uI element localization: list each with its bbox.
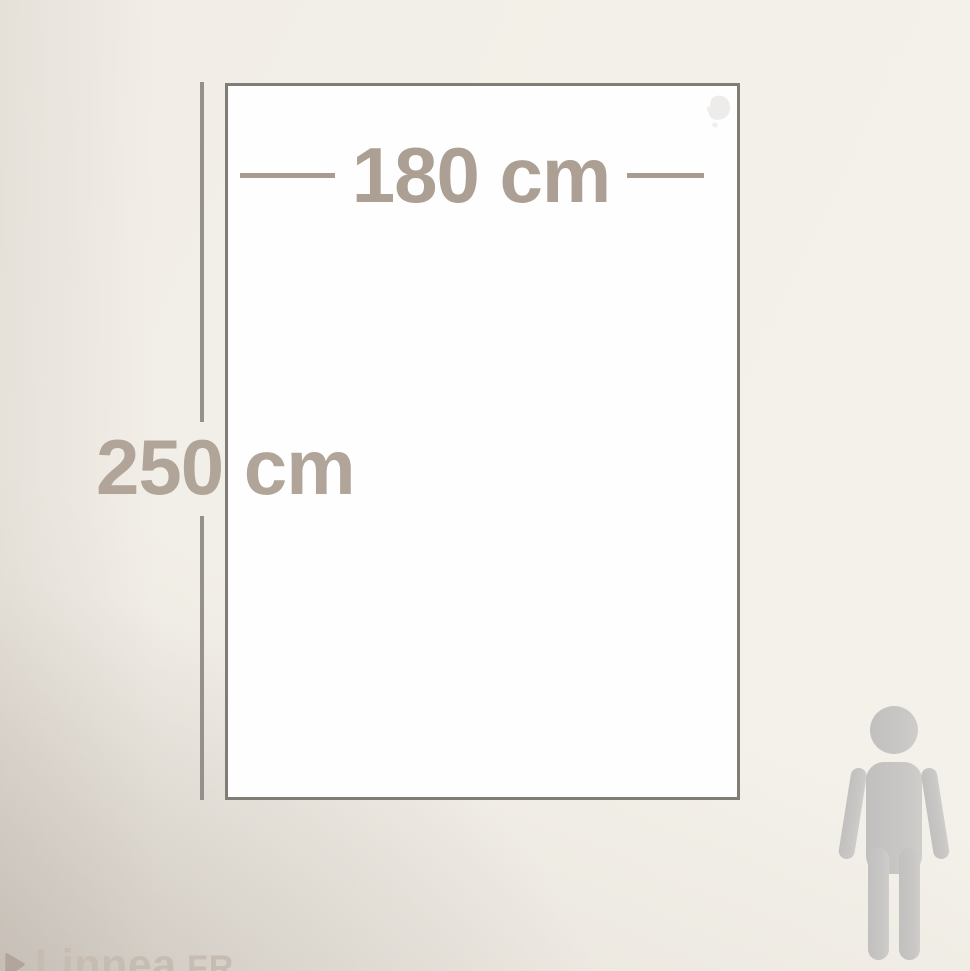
brand-name: Linnea bbox=[35, 941, 177, 971]
width-dimension: 180 cm bbox=[240, 135, 704, 215]
person-icon bbox=[829, 698, 959, 968]
brand-arrow-icon bbox=[4, 952, 26, 971]
brand-text: Linnea.FR bbox=[35, 944, 234, 971]
width-dimension-label: 180 cm bbox=[352, 136, 611, 214]
height-dimension-label: 250 cm bbox=[96, 428, 355, 506]
product-dimension-diagram: 180 cm 250 cm Linnea.FR bbox=[0, 0, 970, 971]
brand-watermark: Linnea.FR bbox=[4, 944, 234, 971]
height-dimension-line-top bbox=[200, 82, 204, 422]
width-dimension-line-left bbox=[240, 173, 335, 178]
corner-logo-watermark-icon bbox=[700, 92, 736, 130]
brand-tld: .FR bbox=[177, 949, 235, 971]
width-dimension-line-right bbox=[627, 173, 704, 178]
height-dimension-line-bottom bbox=[200, 516, 204, 800]
